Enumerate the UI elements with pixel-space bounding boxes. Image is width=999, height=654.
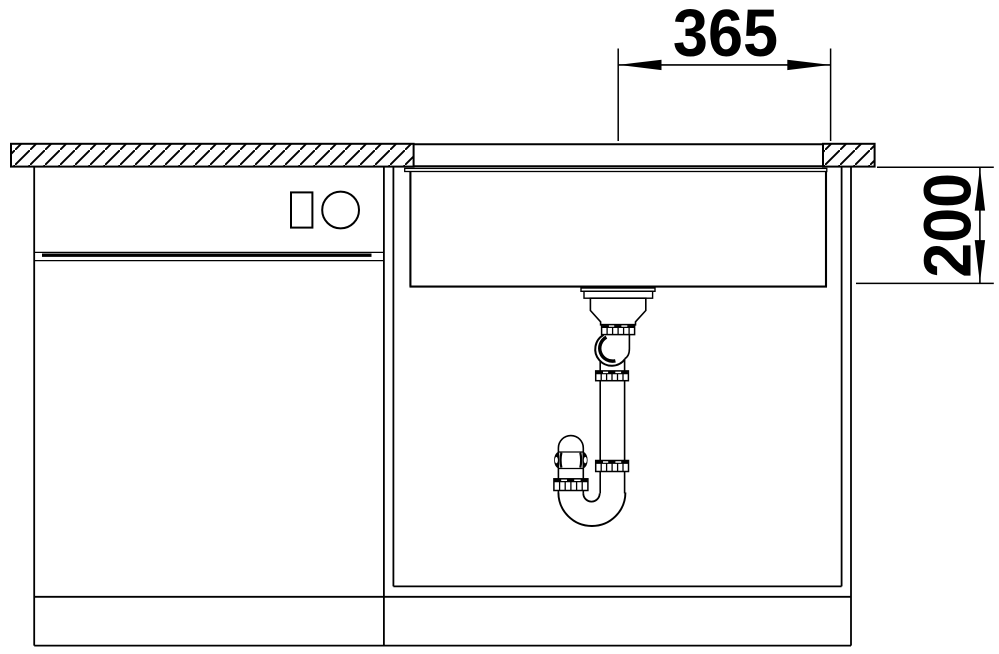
svg-text:365: 365 [673, 0, 778, 71]
svg-text:200: 200 [911, 173, 985, 278]
